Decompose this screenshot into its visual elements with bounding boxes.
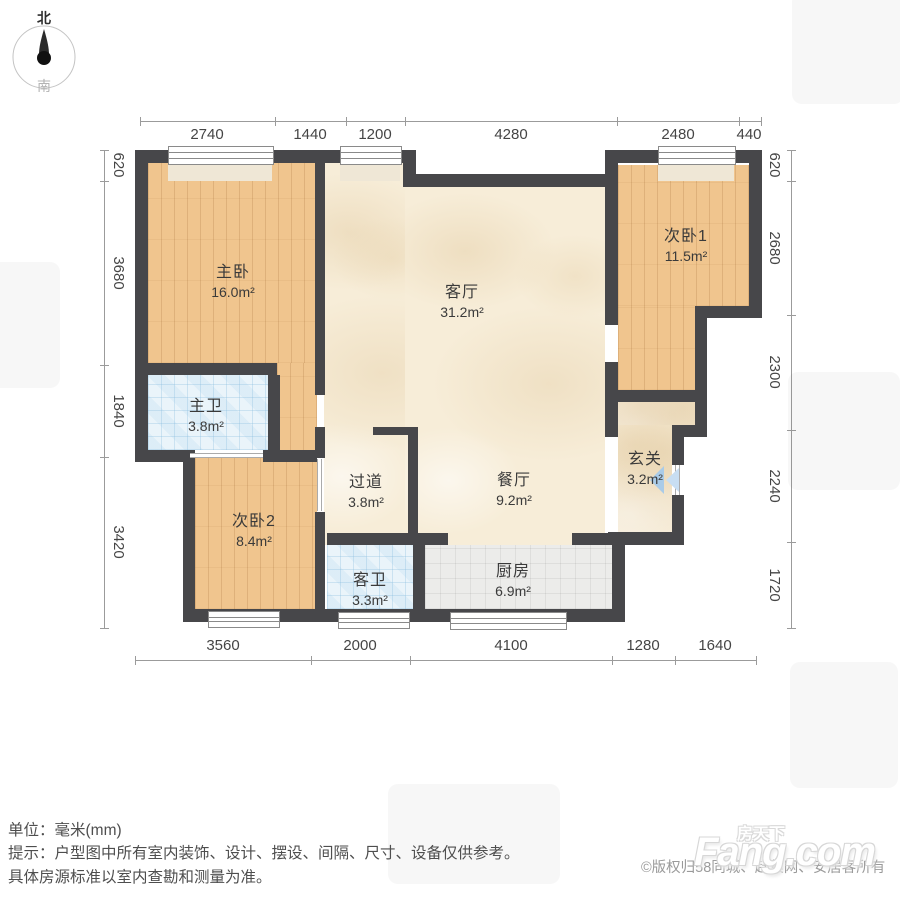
ruler-right-line xyxy=(791,150,792,628)
tip-note-line2: 具体房源标准以室内查勘和测量为准。 xyxy=(8,866,520,889)
dim-left-1: 620 xyxy=(110,152,127,177)
watermark-seal xyxy=(790,662,898,788)
wall-segment xyxy=(605,150,658,163)
dim-bottom-2: 2000 xyxy=(343,637,376,654)
ruler-bottom-line xyxy=(135,660,756,661)
dim-left-2: 3680 xyxy=(110,256,127,289)
ruler-tick xyxy=(410,656,411,665)
window-sill xyxy=(658,163,734,181)
room-label-kitchen: 厨房 6.9m² xyxy=(495,557,531,599)
wall-segment xyxy=(605,362,618,437)
wall-segment xyxy=(268,375,280,455)
room-area: 9.2m² xyxy=(496,492,532,508)
dim-top-3: 1200 xyxy=(358,126,391,143)
room-area: 3.2m² xyxy=(627,471,663,487)
ruler-tick xyxy=(787,315,796,316)
wall-segment xyxy=(672,425,707,437)
wall-segment xyxy=(327,533,448,545)
wall-segment xyxy=(147,363,277,375)
ruler-top-line xyxy=(140,121,761,122)
watermark-seal xyxy=(788,372,900,490)
wall-segment xyxy=(672,437,684,465)
ruler-left-line xyxy=(104,150,105,628)
room-area: 8.4m² xyxy=(232,533,276,549)
ruler-tick xyxy=(100,181,109,182)
ruler-tick xyxy=(756,656,757,665)
dim-top-1: 2740 xyxy=(190,126,223,143)
window xyxy=(658,146,736,165)
ruler-tick xyxy=(100,628,109,629)
room-area: 3.8m² xyxy=(348,494,384,510)
room-label-master-bathroom: 主卫 3.8m² xyxy=(188,392,224,434)
wall-segment xyxy=(315,163,325,395)
window xyxy=(208,611,280,628)
dim-top-4: 4280 xyxy=(494,126,527,143)
floor-entry-upper xyxy=(618,402,695,425)
dim-top-5: 2480 xyxy=(661,126,694,143)
wall-segment xyxy=(135,150,148,462)
dim-right-1: 620 xyxy=(766,152,783,177)
room-label-entry: 玄关 3.2m² xyxy=(627,445,663,487)
room-area: 31.2m² xyxy=(440,304,484,320)
floor-plan-canvas: 北 南 2740 1440 1200 4280 2480 440 620 368… xyxy=(0,0,900,900)
watermark-seal xyxy=(792,0,900,104)
compass-needle-icon xyxy=(39,29,49,55)
compass: 北 南 xyxy=(6,6,82,98)
ruler-tick xyxy=(617,117,618,126)
ruler-tick xyxy=(787,628,796,629)
brand-logo-watermark: Fang.com xyxy=(694,830,875,875)
room-area: 3.8m² xyxy=(188,418,224,434)
room-label-dining-room: 餐厅 9.2m² xyxy=(496,466,532,508)
room-name: 主卫 xyxy=(188,392,224,416)
window xyxy=(450,612,567,630)
ruler-tick xyxy=(787,150,796,151)
ruler-tick xyxy=(739,117,740,126)
ruler-tick xyxy=(135,656,136,665)
floor-hall-strip xyxy=(277,363,317,459)
ruler-tick xyxy=(675,656,676,665)
watermark-seal xyxy=(0,262,60,388)
dim-bottom-1: 3560 xyxy=(206,637,239,654)
wall-segment xyxy=(749,150,762,318)
room-name: 主卧 xyxy=(211,258,255,282)
dim-right-3: 2300 xyxy=(766,355,783,388)
ruler-tick xyxy=(787,430,796,431)
ruler-tick xyxy=(100,150,109,151)
room-area: 11.5m² xyxy=(664,248,708,264)
room-label-bedroom-1: 次卧1 11.5m² xyxy=(664,222,708,264)
room-area: 6.9m² xyxy=(495,583,531,599)
ruler-tick xyxy=(100,457,109,458)
window-sill xyxy=(168,163,272,181)
compass-south-label: 南 xyxy=(37,76,51,96)
room-label-guest-bathroom: 客卫 3.3m² xyxy=(352,566,388,608)
window xyxy=(338,612,410,629)
dim-right-4: 2240 xyxy=(766,469,783,502)
ruler-tick xyxy=(405,117,406,126)
wall-segment xyxy=(263,450,317,462)
room-name: 客厅 xyxy=(440,278,484,302)
room-name: 次卧1 xyxy=(664,222,708,246)
ruler-tick xyxy=(346,117,347,126)
door-opening xyxy=(190,453,263,458)
dim-left-4: 3420 xyxy=(110,525,127,558)
door-opening xyxy=(317,459,322,511)
dim-top-6: 440 xyxy=(736,126,761,143)
room-label-corridor: 过道 3.8m² xyxy=(348,468,384,510)
ruler-tick xyxy=(140,117,141,126)
wall-segment xyxy=(403,174,618,187)
unit-note: 单位：毫米(mm) xyxy=(8,819,520,842)
dim-top-2: 1440 xyxy=(293,126,326,143)
dim-right-2: 2680 xyxy=(766,231,783,264)
dim-left-3: 1840 xyxy=(110,394,127,427)
wall-segment xyxy=(272,150,340,163)
ruler-tick xyxy=(787,181,796,182)
ruler-tick xyxy=(275,117,276,126)
dim-bottom-3: 4100 xyxy=(494,637,527,654)
dim-bottom-4: 1280 xyxy=(626,637,659,654)
wall-segment xyxy=(605,163,618,325)
dim-bottom-5: 1640 xyxy=(698,637,731,654)
wall-segment xyxy=(183,450,195,622)
room-name: 次卧2 xyxy=(232,507,276,531)
room-label-living-room: 客厅 31.2m² xyxy=(440,278,484,320)
ruler-tick xyxy=(787,542,796,543)
floor-bedroom-1-lower xyxy=(618,306,695,390)
dim-right-5: 1720 xyxy=(766,568,783,601)
room-name: 餐厅 xyxy=(496,466,532,490)
ruler-tick xyxy=(612,656,613,665)
wall-segment xyxy=(618,390,707,402)
room-name: 客卫 xyxy=(352,566,388,590)
room-area: 3.3m² xyxy=(352,592,388,608)
tip-note-line1: 提示：户型图中所有室内装饰、设计、摆设、间隔、尺寸、设备仅供参考。 xyxy=(8,842,520,865)
wall-segment xyxy=(315,512,325,622)
ruler-tick xyxy=(311,656,312,665)
window-sill xyxy=(340,163,400,181)
room-label-master-bedroom: 主卧 16.0m² xyxy=(211,258,255,300)
room-area: 16.0m² xyxy=(211,284,255,300)
footer-notes: 单位：毫米(mm) 提示：户型图中所有室内装饰、设计、摆设、间隔、尺寸、设备仅供… xyxy=(8,819,520,889)
ruler-tick xyxy=(100,365,109,366)
wall-segment xyxy=(408,427,418,535)
compass-north-label: 北 xyxy=(37,8,51,28)
window xyxy=(340,146,402,165)
room-name: 过道 xyxy=(348,468,384,492)
room-label-bedroom-2: 次卧2 8.4m² xyxy=(232,507,276,549)
window xyxy=(168,146,274,165)
wall-segment xyxy=(413,545,425,620)
room-name: 玄关 xyxy=(627,445,663,469)
wall-segment xyxy=(695,306,707,437)
room-name: 厨房 xyxy=(495,557,531,581)
wall-segment xyxy=(572,533,612,545)
ruler-tick xyxy=(761,117,762,126)
